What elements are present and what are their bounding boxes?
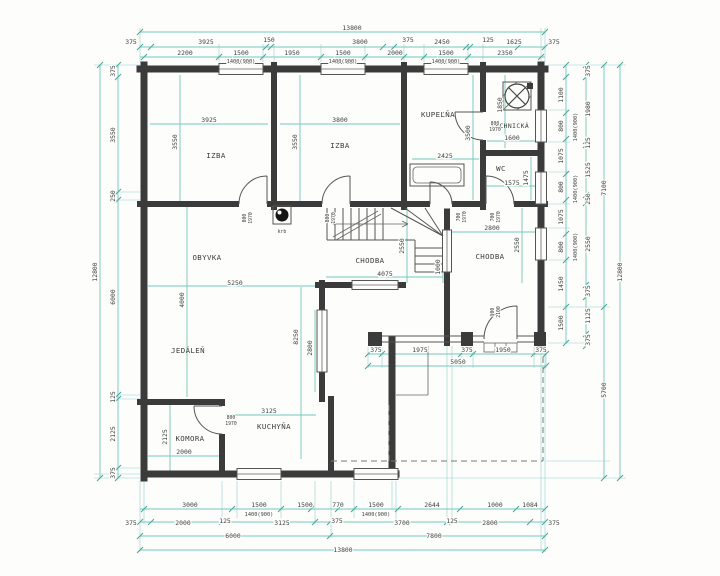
dim-chain: [140, 509, 545, 550]
dim-label: 1475: [522, 170, 530, 186]
dim-label: 150: [263, 36, 275, 44]
door-label: 800: [491, 121, 500, 127]
dim-label: 800: [557, 181, 565, 193]
room-label-jedalen: JEDÁLEŇ: [171, 346, 205, 355]
dim-label: 250: [109, 190, 117, 202]
dim-label: 375: [125, 519, 137, 527]
room-label-chodba1: CHODBA: [355, 256, 384, 265]
doors: [194, 112, 517, 434]
door-izba1: [239, 176, 267, 209]
dim-label: 1500: [233, 49, 249, 57]
dim-label: 1100: [557, 87, 565, 103]
porch: [331, 332, 546, 461]
dim-label: 375: [370, 346, 382, 354]
window: [321, 64, 365, 75]
door-label: 1970: [248, 212, 254, 224]
dim-label: 1500: [251, 501, 267, 509]
dim-label: 1400(900): [362, 512, 391, 518]
dim-label: 125: [482, 36, 494, 44]
window: [237, 469, 281, 480]
stair-cut-line: [333, 211, 381, 240]
door-label: 2100: [496, 306, 502, 318]
dim-label: 375: [331, 517, 343, 525]
left-dimension-labels: 375 3550 250 6000 125 2125 375 12800: [91, 65, 117, 479]
door-label: 1970: [462, 211, 468, 223]
door-label: 1970: [489, 127, 501, 133]
dim-label: 375: [109, 467, 117, 479]
dim-label: 125: [584, 137, 592, 149]
window: [536, 172, 547, 204]
dim-label: 375: [535, 346, 547, 354]
dim-label: 1400(900): [573, 113, 579, 142]
dim-label: 1400(900): [245, 512, 274, 518]
window: [354, 469, 398, 480]
dim-label: 375: [548, 38, 560, 46]
dim-label: 1600: [504, 134, 520, 142]
dim-label: 3000: [182, 501, 198, 509]
room-labels: IZBA IZBA KUPEĽŇA TECHNICKÁ WC OBYVKA CH…: [171, 110, 529, 443]
dim-label: 2800: [306, 340, 314, 356]
porch-pillar: [461, 332, 473, 346]
room-label-chodba2: CHODBA: [475, 252, 504, 261]
window: [536, 110, 547, 142]
window: [219, 64, 263, 75]
dim-label: 375: [584, 285, 592, 297]
door-label: 1970: [225, 421, 237, 427]
porch-pillar: [368, 332, 382, 346]
dim-label: 13800: [342, 24, 361, 32]
dim-label: 1400(900): [227, 59, 256, 65]
dim-label: 1500: [297, 501, 313, 509]
floor-plan-page: IZBA IZBA KUPEĽŇA TECHNICKÁ WC OBYVKA CH…: [0, 0, 720, 576]
dim-label: 1400(900): [573, 175, 579, 204]
window: [424, 64, 468, 75]
door-izba2: [322, 176, 350, 209]
dim-label: 3800: [332, 116, 348, 124]
dim-label: 2125: [109, 426, 117, 442]
room-label-komora: KOMORA: [175, 434, 204, 443]
room-label-obyvka: OBYVKA: [192, 253, 221, 262]
dim-label: 12800: [91, 262, 99, 281]
dim-label: 3800: [352, 38, 368, 46]
dim-label: 2644: [424, 501, 440, 509]
dim-label: 1975: [412, 346, 428, 354]
dim-label: 1500: [368, 501, 384, 509]
window: [536, 228, 547, 260]
dim-label: 1575: [504, 179, 520, 187]
dim-label: 3550: [109, 127, 117, 143]
dim-label: 1625: [506, 38, 522, 46]
dim-label: 1000: [434, 259, 442, 275]
extension-line: [94, 65, 140, 478]
door-label: 900: [490, 308, 496, 317]
dim-label: 375: [584, 334, 592, 346]
dim-label: 3925: [198, 38, 214, 46]
dim-label: 2350: [497, 49, 513, 57]
dim-label: 1125: [584, 308, 592, 324]
dim-label: 375: [402, 36, 414, 44]
dim-label: 12800: [616, 262, 624, 281]
dim-label: 3550: [171, 134, 179, 150]
dim-label: 2425: [437, 152, 453, 160]
dim-chain: [100, 65, 118, 478]
bottom-dimension-labels: 3000 1500 1500 770 1500 2644 1000 1084 1…: [125, 501, 560, 554]
dim-label: 375: [125, 38, 137, 46]
room-label-kuchyna: KUCHYŇA: [257, 422, 291, 431]
door-size-labels: 800 1970 800 1970 700 1970 700 1970 800 …: [225, 121, 502, 427]
dim-label: 800: [557, 120, 565, 132]
fireplace-label: krb: [278, 229, 287, 235]
dim-label: 1000: [487, 501, 503, 509]
dim-label: 1525: [584, 162, 592, 178]
dim-label: 250: [584, 193, 592, 205]
dim-label: 5050: [450, 358, 466, 366]
door-label: 1970: [331, 212, 337, 224]
dim-label: 2000: [387, 49, 403, 57]
dim-label: 3125: [261, 407, 277, 415]
dim-label: 3500: [464, 125, 472, 141]
dim-label: 1950: [284, 49, 300, 57]
dim-label: 13800: [333, 546, 352, 554]
dim-label: 2000: [175, 519, 191, 527]
dim-label: 2550: [513, 237, 521, 253]
door-label: 800: [227, 415, 236, 421]
dim-label: 125: [446, 517, 458, 525]
room-label-izba1: IZBA: [206, 151, 226, 160]
dim-label: 4075: [377, 270, 393, 278]
top-dimension-labels: 13800 375 3925 150 3800 375 2450 125 162…: [125, 24, 560, 65]
chimney-boiler-icon: [503, 82, 533, 110]
dim-label: 375: [548, 519, 560, 527]
dim-label: 8250: [292, 329, 300, 345]
dim-label: 770: [332, 501, 344, 509]
dim-label: 1980: [584, 101, 592, 117]
dim-label: 2000: [176, 448, 192, 456]
dim-label: 3125: [274, 519, 290, 527]
door-label: 800: [242, 214, 248, 223]
door-label: 700: [456, 213, 462, 222]
door-label: 700: [490, 213, 496, 222]
right-dimension-labels: 1100 800 1075 800 1075 800 1450 1500 140…: [557, 65, 624, 398]
dim-label: 1450: [557, 276, 565, 292]
dim-label: 1850: [496, 97, 504, 113]
dim-label: 375: [461, 346, 473, 354]
dim-label: 1084: [522, 501, 538, 509]
dim-label: 2550: [398, 238, 406, 254]
dim-label: 7100: [600, 180, 608, 196]
dim-label: 3700: [394, 519, 410, 527]
dim-label: 6000: [225, 532, 241, 540]
window: [352, 281, 398, 290]
dim-label: 1500: [335, 49, 351, 57]
dim-label: 800: [557, 241, 565, 253]
dim-label: 1950: [495, 346, 511, 354]
dim-label: 1400(900): [573, 233, 579, 262]
dim-label: 1075: [557, 148, 565, 164]
staircase: [327, 208, 443, 272]
roof-overhang-dashed: [331, 347, 543, 461]
room-label-kupelna: KUPEĽŇA: [421, 110, 455, 119]
dim-label: 2550: [584, 236, 592, 252]
dim-label: 2200: [177, 49, 193, 57]
dim-label: 6000: [109, 289, 117, 305]
door-label: 1970: [496, 211, 502, 223]
dim-label: 5700: [600, 382, 608, 398]
dim-label: 375: [109, 65, 117, 77]
window: [443, 230, 452, 272]
dim-label: 4000: [178, 292, 186, 308]
stair-direction-arrow: [333, 221, 408, 227]
dim-label: 5250: [227, 279, 243, 287]
dim-label: 2450: [434, 38, 450, 46]
dim-label: 7800: [426, 532, 442, 540]
dim-label: 375: [584, 65, 592, 77]
bathtub: [410, 164, 464, 186]
dim-label: 2800: [482, 519, 498, 527]
dim-label: 125: [109, 391, 117, 403]
room-label-wc: WC: [496, 164, 506, 173]
dim-label: 1075: [557, 209, 565, 225]
dim-label: 1400(900): [329, 59, 358, 65]
dim-label: 2125: [161, 429, 169, 445]
door-komora: [194, 406, 227, 434]
door-label: 800: [325, 214, 331, 223]
dim-label: 1500: [557, 315, 565, 331]
dim-label: 1500: [438, 49, 454, 57]
dim-label: 3925: [201, 116, 217, 124]
dim-label: 2800: [484, 224, 500, 232]
window: [317, 310, 327, 372]
dim-label: 3550: [291, 134, 299, 150]
room-label-izba2: IZBA: [330, 141, 350, 150]
floor-plan-drawing: IZBA IZBA KUPEĽŇA TECHNICKÁ WC OBYVKA CH…: [0, 0, 720, 576]
porch-pillar: [534, 332, 546, 346]
dim-label: 1400(900): [432, 59, 461, 65]
dim-label: 125: [219, 517, 231, 525]
